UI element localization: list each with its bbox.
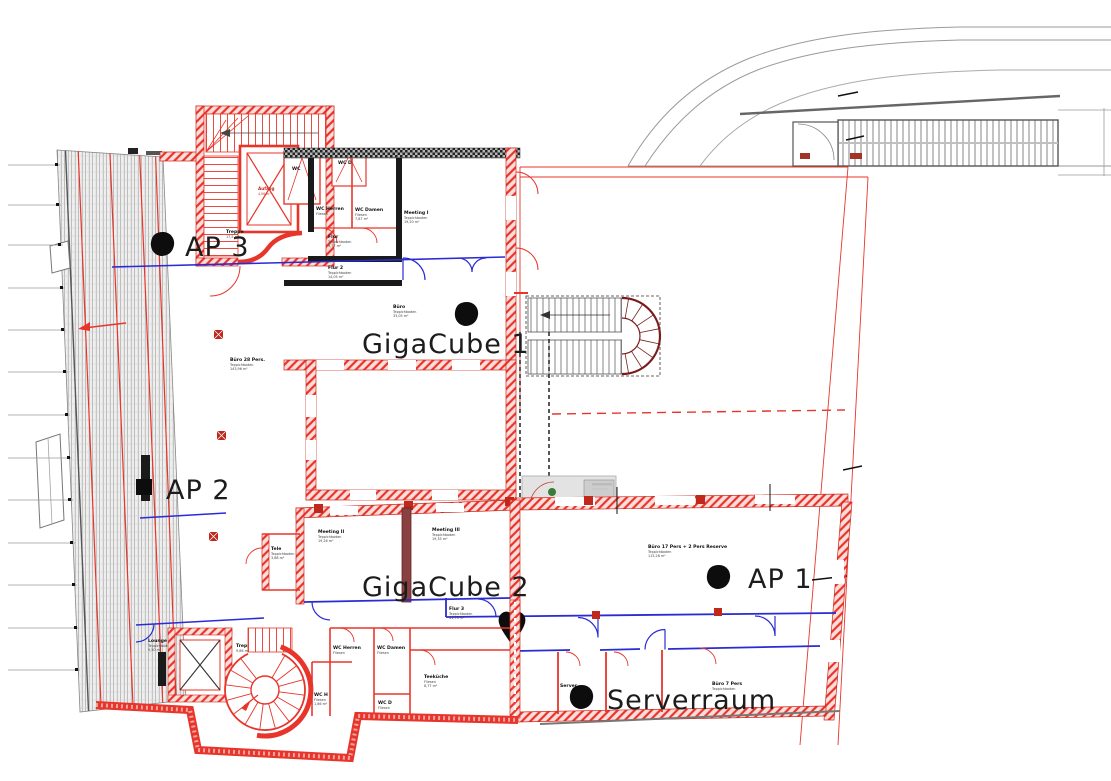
door-arc: [403, 258, 425, 280]
exterior-stair-top-right: [793, 120, 1058, 166]
room-label: WC: [292, 166, 301, 172]
svg-text:8,77 m²: 8,77 m²: [424, 684, 438, 688]
svg-text:19,20 m²: 19,20 m²: [404, 220, 420, 224]
svg-text:3,88 m²: 3,88 m²: [271, 556, 285, 560]
black-wall: [308, 158, 314, 232]
door-arc: [420, 650, 435, 665]
door-arc: [516, 172, 538, 194]
svg-text:Fliesen: Fliesen: [316, 212, 328, 216]
ap2-marker: [136, 479, 152, 495]
svg-text:33,05 m²: 33,05 m²: [393, 314, 409, 318]
svg-text:9,50 m²: 9,50 m²: [148, 648, 162, 652]
door-arc: [614, 652, 628, 666]
ap1-label: AP 1: [748, 564, 813, 595]
door-arc: [362, 228, 377, 243]
ap2-label: AP 2: [166, 475, 231, 506]
gigacube1-label: GigaCube 1: [362, 329, 530, 360]
svg-text:14,05 m²: 14,05 m²: [328, 275, 344, 279]
floorplan-page: Aufzug 4,06 m² WC WC D WC Herren Fliesen…: [0, 0, 1111, 781]
ap3-label: AP 3: [185, 232, 250, 263]
door-arc: [578, 618, 598, 638]
door-arc: [312, 602, 330, 620]
ap3-marker: [151, 232, 174, 256]
svg-text:Fliesen: Fliesen: [378, 706, 390, 710]
room-label: WC D: [338, 160, 352, 166]
door-arc: [516, 248, 538, 270]
gigacube2-label: GigaCube 2: [362, 572, 530, 603]
gigacube-box: [306, 360, 516, 500]
wc-block-south: [312, 628, 516, 716]
door-arc: [700, 648, 716, 664]
door-arc: [210, 266, 240, 296]
door-arc: [645, 630, 665, 650]
central-stair: [514, 293, 660, 376]
door-arc: [380, 628, 393, 641]
door-arc: [566, 652, 580, 666]
black-wall: [284, 280, 402, 286]
svg-text:1,86 m²: 1,86 m²: [314, 702, 328, 706]
serverraum-label: Serverraum: [607, 685, 776, 716]
black-wall: [284, 148, 520, 158]
flur3-corridor: Flur 3 Teppichboden 41,73 m²: [446, 598, 836, 651]
serverraum-marker: [570, 685, 593, 709]
door-arc: [246, 548, 262, 564]
room-label: Aufzug: [258, 186, 274, 191]
floorplan-drawing: Aufzug 4,06 m² WC WC D WC Herren Fliesen…: [0, 0, 1111, 781]
svg-text:Fliesen: Fliesen: [333, 651, 345, 655]
gigacube1-marker: [455, 302, 478, 326]
svg-text:19,26 m²: 19,26 m²: [318, 539, 334, 543]
column-marker: [209, 330, 226, 541]
svg-text:41,73 m²: 41,73 m²: [449, 616, 465, 620]
svg-text:Teppichboden: Teppichboden: [711, 687, 735, 691]
symbol-dot: [548, 488, 556, 496]
red-wall: [824, 502, 852, 720]
svg-text:9,77 m²: 9,77 m²: [328, 244, 342, 248]
door-arc: [340, 628, 354, 642]
facade-door: [158, 652, 166, 686]
dimension-tick: [838, 92, 858, 96]
double-door-arc: [458, 258, 486, 272]
svg-text:Fliesen: Fliesen: [377, 651, 389, 655]
serverraum-block: Server Serverraum Büro 7 Pers Teppichbod…: [558, 648, 776, 716]
tele-room: Tele Teppichboden 3,88 m²: [246, 534, 300, 590]
svg-text:7,87 m²: 7,87 m²: [355, 217, 369, 221]
wc-small-north: WC WC D: [284, 152, 366, 204]
door-arc: [755, 616, 775, 636]
svg-text:19,35 m²: 19,35 m²: [432, 537, 448, 541]
black-wall: [396, 158, 402, 262]
svg-text:115,28 m²: 115,28 m²: [648, 554, 666, 558]
ap1-marker: [707, 565, 730, 589]
svg-text:143,96 m²: 143,96 m²: [230, 367, 248, 371]
property-lines: [520, 92, 868, 745]
svg-text:4,06 m²: 4,06 m²: [258, 192, 271, 196]
svg-text:17,5 m²: 17,5 m²: [226, 235, 240, 239]
meeting-block-south: Meeting II Teppichboden 19,26 m² Meeting…: [296, 497, 530, 620]
